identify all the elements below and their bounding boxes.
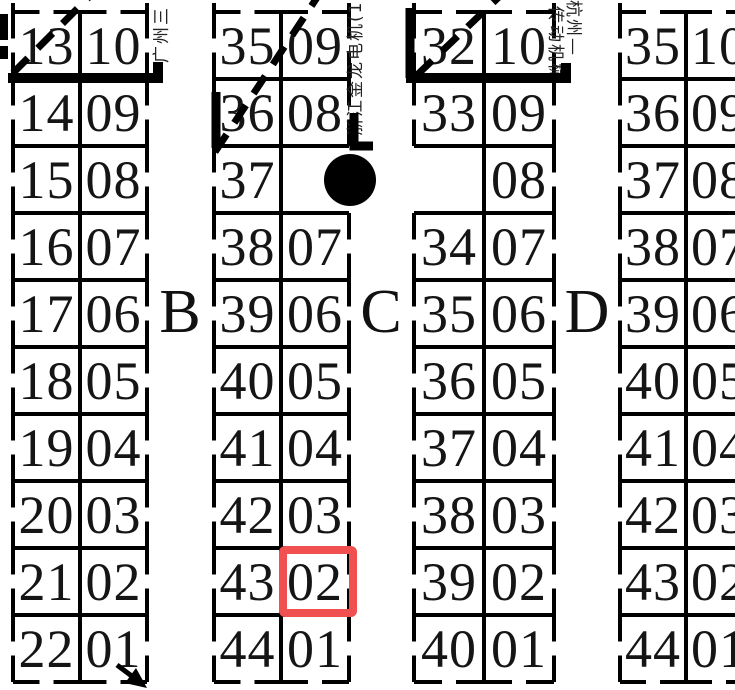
grid-border-right — [552, 347, 556, 414]
grid-border-right — [145, 481, 149, 548]
booth-cell[interactable]: 10 — [486, 14, 552, 77]
grid-border-right — [145, 213, 149, 280]
booth-cell[interactable]: 09 — [688, 81, 735, 144]
exhibition-floor-plan: 1310140915081607170618051904200321022201… — [0, 0, 735, 690]
booth-cell[interactable]: 38 — [216, 215, 279, 278]
booth-cell[interactable]: 39 — [622, 282, 684, 345]
vendor-label: 广州三 — [147, 6, 172, 63]
circle-marker — [324, 154, 376, 206]
booth-cell[interactable]: 06 — [486, 282, 552, 345]
booth-cell[interactable]: 44 — [622, 617, 684, 680]
grid-border-right — [552, 280, 556, 347]
grid-border-bottom — [13, 680, 80, 684]
booth-cell[interactable]: 42 — [216, 483, 279, 546]
booth-cell[interactable]: 01 — [82, 617, 145, 680]
booth-cell[interactable]: 39 — [416, 550, 482, 613]
grid-border-right — [552, 213, 556, 280]
booth-cell[interactable]: 36 — [622, 81, 684, 144]
grid-border-stub — [412, 3, 416, 12]
grid-border-right — [347, 213, 351, 280]
booth-cell[interactable]: 03 — [688, 483, 735, 546]
grid-border-right — [145, 280, 149, 347]
grid-border-bottom — [281, 680, 349, 684]
grid-border-stub — [212, 3, 216, 12]
booth-cell[interactable]: 09 — [283, 14, 347, 77]
booth-cell[interactable]: 03 — [82, 483, 145, 546]
grid-border-bottom — [214, 680, 281, 684]
vendor-label: 传动机械 — [545, 6, 570, 82]
booth-cell[interactable]: 15 — [15, 148, 78, 211]
booth-cell[interactable]: 08 — [82, 148, 145, 211]
booth-cell[interactable]: 01 — [486, 617, 552, 680]
booth-cell[interactable]: 06 — [688, 282, 735, 345]
booth-cell[interactable]: 34 — [416, 215, 482, 278]
booth-cell[interactable]: 22 — [15, 617, 78, 680]
booth-cell[interactable]: 01 — [283, 617, 347, 680]
booth-cell[interactable]: 36 — [416, 349, 482, 412]
booth-cell[interactable]: 18 — [15, 349, 78, 412]
booth-cell[interactable]: 03 — [283, 483, 347, 546]
booth-cell[interactable]: 42 — [622, 483, 684, 546]
booth-cell[interactable]: 04 — [283, 416, 347, 479]
booth-cell[interactable]: 04 — [486, 416, 552, 479]
section-label: B — [159, 277, 200, 348]
booth-cell[interactable]: 08 — [688, 148, 735, 211]
booth-cell[interactable]: 19 — [15, 416, 78, 479]
grid-border-right — [347, 615, 351, 682]
booth-cell[interactable]: 40 — [416, 617, 482, 680]
booth-cell[interactable]: 02 — [486, 550, 552, 613]
booth-cell[interactable]: 41 — [216, 416, 279, 479]
booth-cell[interactable]: 21 — [15, 550, 78, 613]
booth-cell[interactable]: 41 — [622, 416, 684, 479]
grid-border-right — [552, 414, 556, 481]
booth-cell[interactable]: 07 — [486, 215, 552, 278]
booth-cell[interactable]: 35 — [216, 14, 279, 77]
booth-cell[interactable]: 40 — [622, 349, 684, 412]
booth-cell[interactable]: 40 — [216, 349, 279, 412]
booth-cell[interactable]: 20 — [15, 483, 78, 546]
booth-cell[interactable]: 14 — [15, 81, 78, 144]
grid-border-right — [552, 481, 556, 548]
grid-border-bottom — [414, 680, 484, 684]
grid-border-right — [145, 615, 149, 682]
grid-border-right — [145, 414, 149, 481]
booth-cell[interactable]: 37 — [216, 148, 279, 211]
booth-cell[interactable]: 07 — [283, 215, 347, 278]
grid-border-bottom — [80, 680, 147, 684]
booth-cell[interactable]: 09 — [486, 81, 552, 144]
booth-cell[interactable]: 04 — [688, 416, 735, 479]
booth-cell[interactable]: 06 — [283, 282, 347, 345]
booth-cell[interactable]: 03 — [486, 483, 552, 546]
booth-cell[interactable]: 10 — [688, 14, 735, 77]
booth-cell[interactable]: 13 — [15, 14, 78, 77]
booth-cell[interactable]: 32 — [416, 14, 482, 77]
booth-cell[interactable]: 09 — [82, 81, 145, 144]
grid-border-right — [145, 548, 149, 615]
booth-cell[interactable]: 02 — [688, 550, 735, 613]
section-label: D — [565, 277, 610, 348]
grid-border-bottom — [484, 680, 554, 684]
grid-border-right — [347, 347, 351, 414]
booth-cell[interactable]: 38 — [622, 215, 684, 278]
booth-cell[interactable]: 07 — [688, 215, 735, 278]
booth-cell[interactable]: 33 — [416, 81, 482, 144]
booth-cell[interactable]: 05 — [486, 349, 552, 412]
grid-border-right — [347, 548, 351, 615]
grid-border-right — [145, 79, 149, 146]
booth-cell[interactable]: 17 — [15, 282, 78, 345]
booth-cell[interactable]: 05 — [82, 349, 145, 412]
grid-border-right — [347, 481, 351, 548]
booth-cell[interactable]: 10 — [82, 14, 145, 77]
grid-border-stub — [11, 3, 15, 12]
booth-cell[interactable]: 01 — [688, 617, 735, 680]
grid-border-right — [145, 146, 149, 213]
booth-cell[interactable]: 05 — [688, 349, 735, 412]
grid-border-right — [552, 79, 556, 146]
grid-border-right — [347, 280, 351, 347]
grid-border-right — [145, 347, 149, 414]
grid-border-right — [552, 548, 556, 615]
booth-cell[interactable]: 08 — [486, 148, 552, 211]
booth-cell[interactable]: 07 — [82, 215, 145, 278]
section-label: C — [360, 277, 401, 348]
booth-cell[interactable]: 35 — [416, 282, 482, 345]
booth-cell[interactable]: 38 — [416, 483, 482, 546]
booth-cell[interactable]: 44 — [216, 617, 279, 680]
booth-cell[interactable]: 43 — [622, 550, 684, 613]
booth-cell[interactable]: 04 — [82, 416, 145, 479]
booth-cell[interactable]: 37 — [622, 148, 684, 211]
booth-cell[interactable]: 05 — [283, 349, 347, 412]
booth-cell[interactable]: 43 — [216, 550, 279, 613]
grid-border-right — [552, 146, 556, 213]
booth-cell[interactable]: 02 — [82, 550, 145, 613]
booth-cell[interactable]: 16 — [15, 215, 78, 278]
booth-cell[interactable]: 35 — [622, 14, 684, 77]
booth-cell[interactable]: 06 — [82, 282, 145, 345]
booth-cell[interactable]: 37 — [416, 416, 482, 479]
grid-border-bottom — [686, 680, 735, 684]
grid-border-bottom — [620, 680, 686, 684]
booth-cell[interactable]: 36 — [216, 81, 279, 144]
grid-border-stub — [618, 3, 622, 12]
grid-border-right — [347, 414, 351, 481]
booth-cell[interactable]: 39 — [216, 282, 279, 345]
vendor-label: 浙江金龙电机(14 — [341, 0, 366, 136]
grid-border-right — [552, 615, 556, 682]
booth-cell[interactable]: 02 — [283, 550, 347, 613]
booth-cell[interactable]: 08 — [283, 81, 347, 144]
